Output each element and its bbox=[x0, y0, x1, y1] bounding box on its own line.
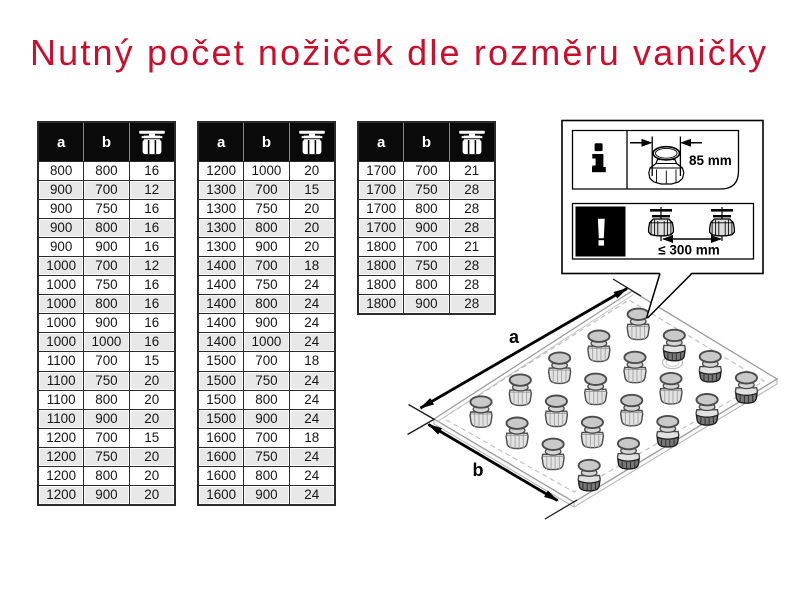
svg-text:a: a bbox=[509, 327, 520, 347]
svg-text:≤ 300 mm: ≤ 300 mm bbox=[658, 243, 719, 258]
svg-text:85 mm: 85 mm bbox=[689, 153, 732, 168]
svg-text:b: b bbox=[473, 460, 484, 480]
